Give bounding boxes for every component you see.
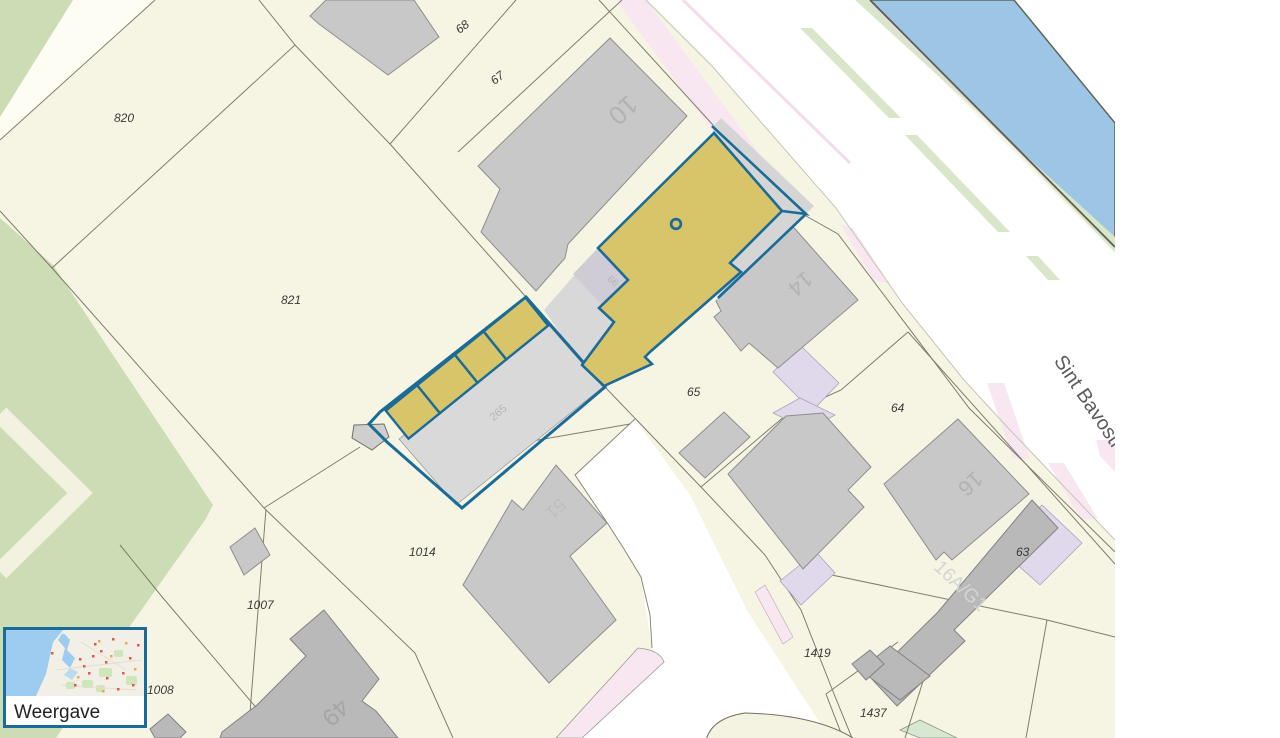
svg-text:820: 820 [114,111,134,125]
svg-text:1007: 1007 [247,598,275,612]
svg-text:63: 63 [1016,545,1030,559]
svg-text:65: 65 [687,385,701,399]
svg-text:821: 821 [281,293,301,307]
svg-text:1014: 1014 [409,545,436,559]
svg-text:1008: 1008 [147,683,174,697]
svg-text:1419: 1419 [804,646,831,660]
svg-text:64: 64 [891,401,905,415]
svg-text:1437: 1437 [860,706,888,720]
